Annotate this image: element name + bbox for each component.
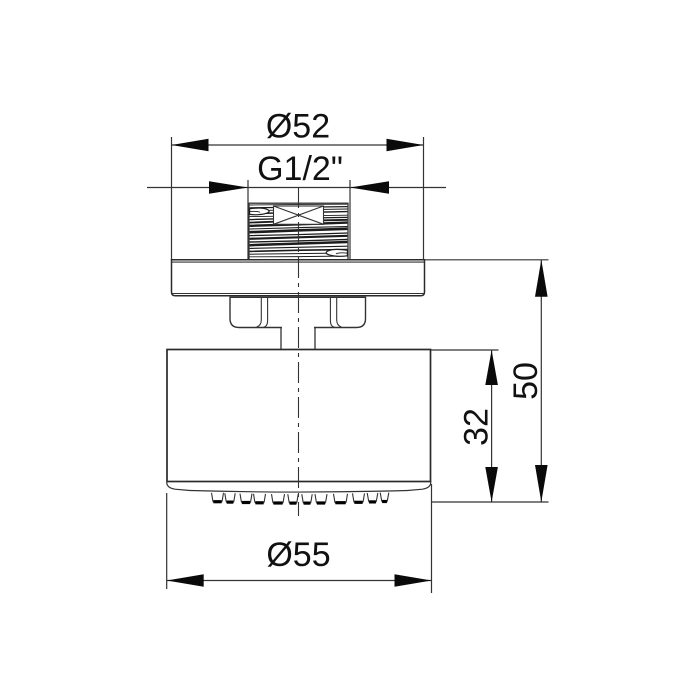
svg-text:Ø52: Ø52 [266, 108, 330, 146]
svg-text:32: 32 [458, 408, 496, 446]
svg-text:Ø55: Ø55 [266, 536, 330, 574]
svg-text:G1/2": G1/2" [257, 150, 343, 188]
svg-text:50: 50 [507, 362, 545, 400]
